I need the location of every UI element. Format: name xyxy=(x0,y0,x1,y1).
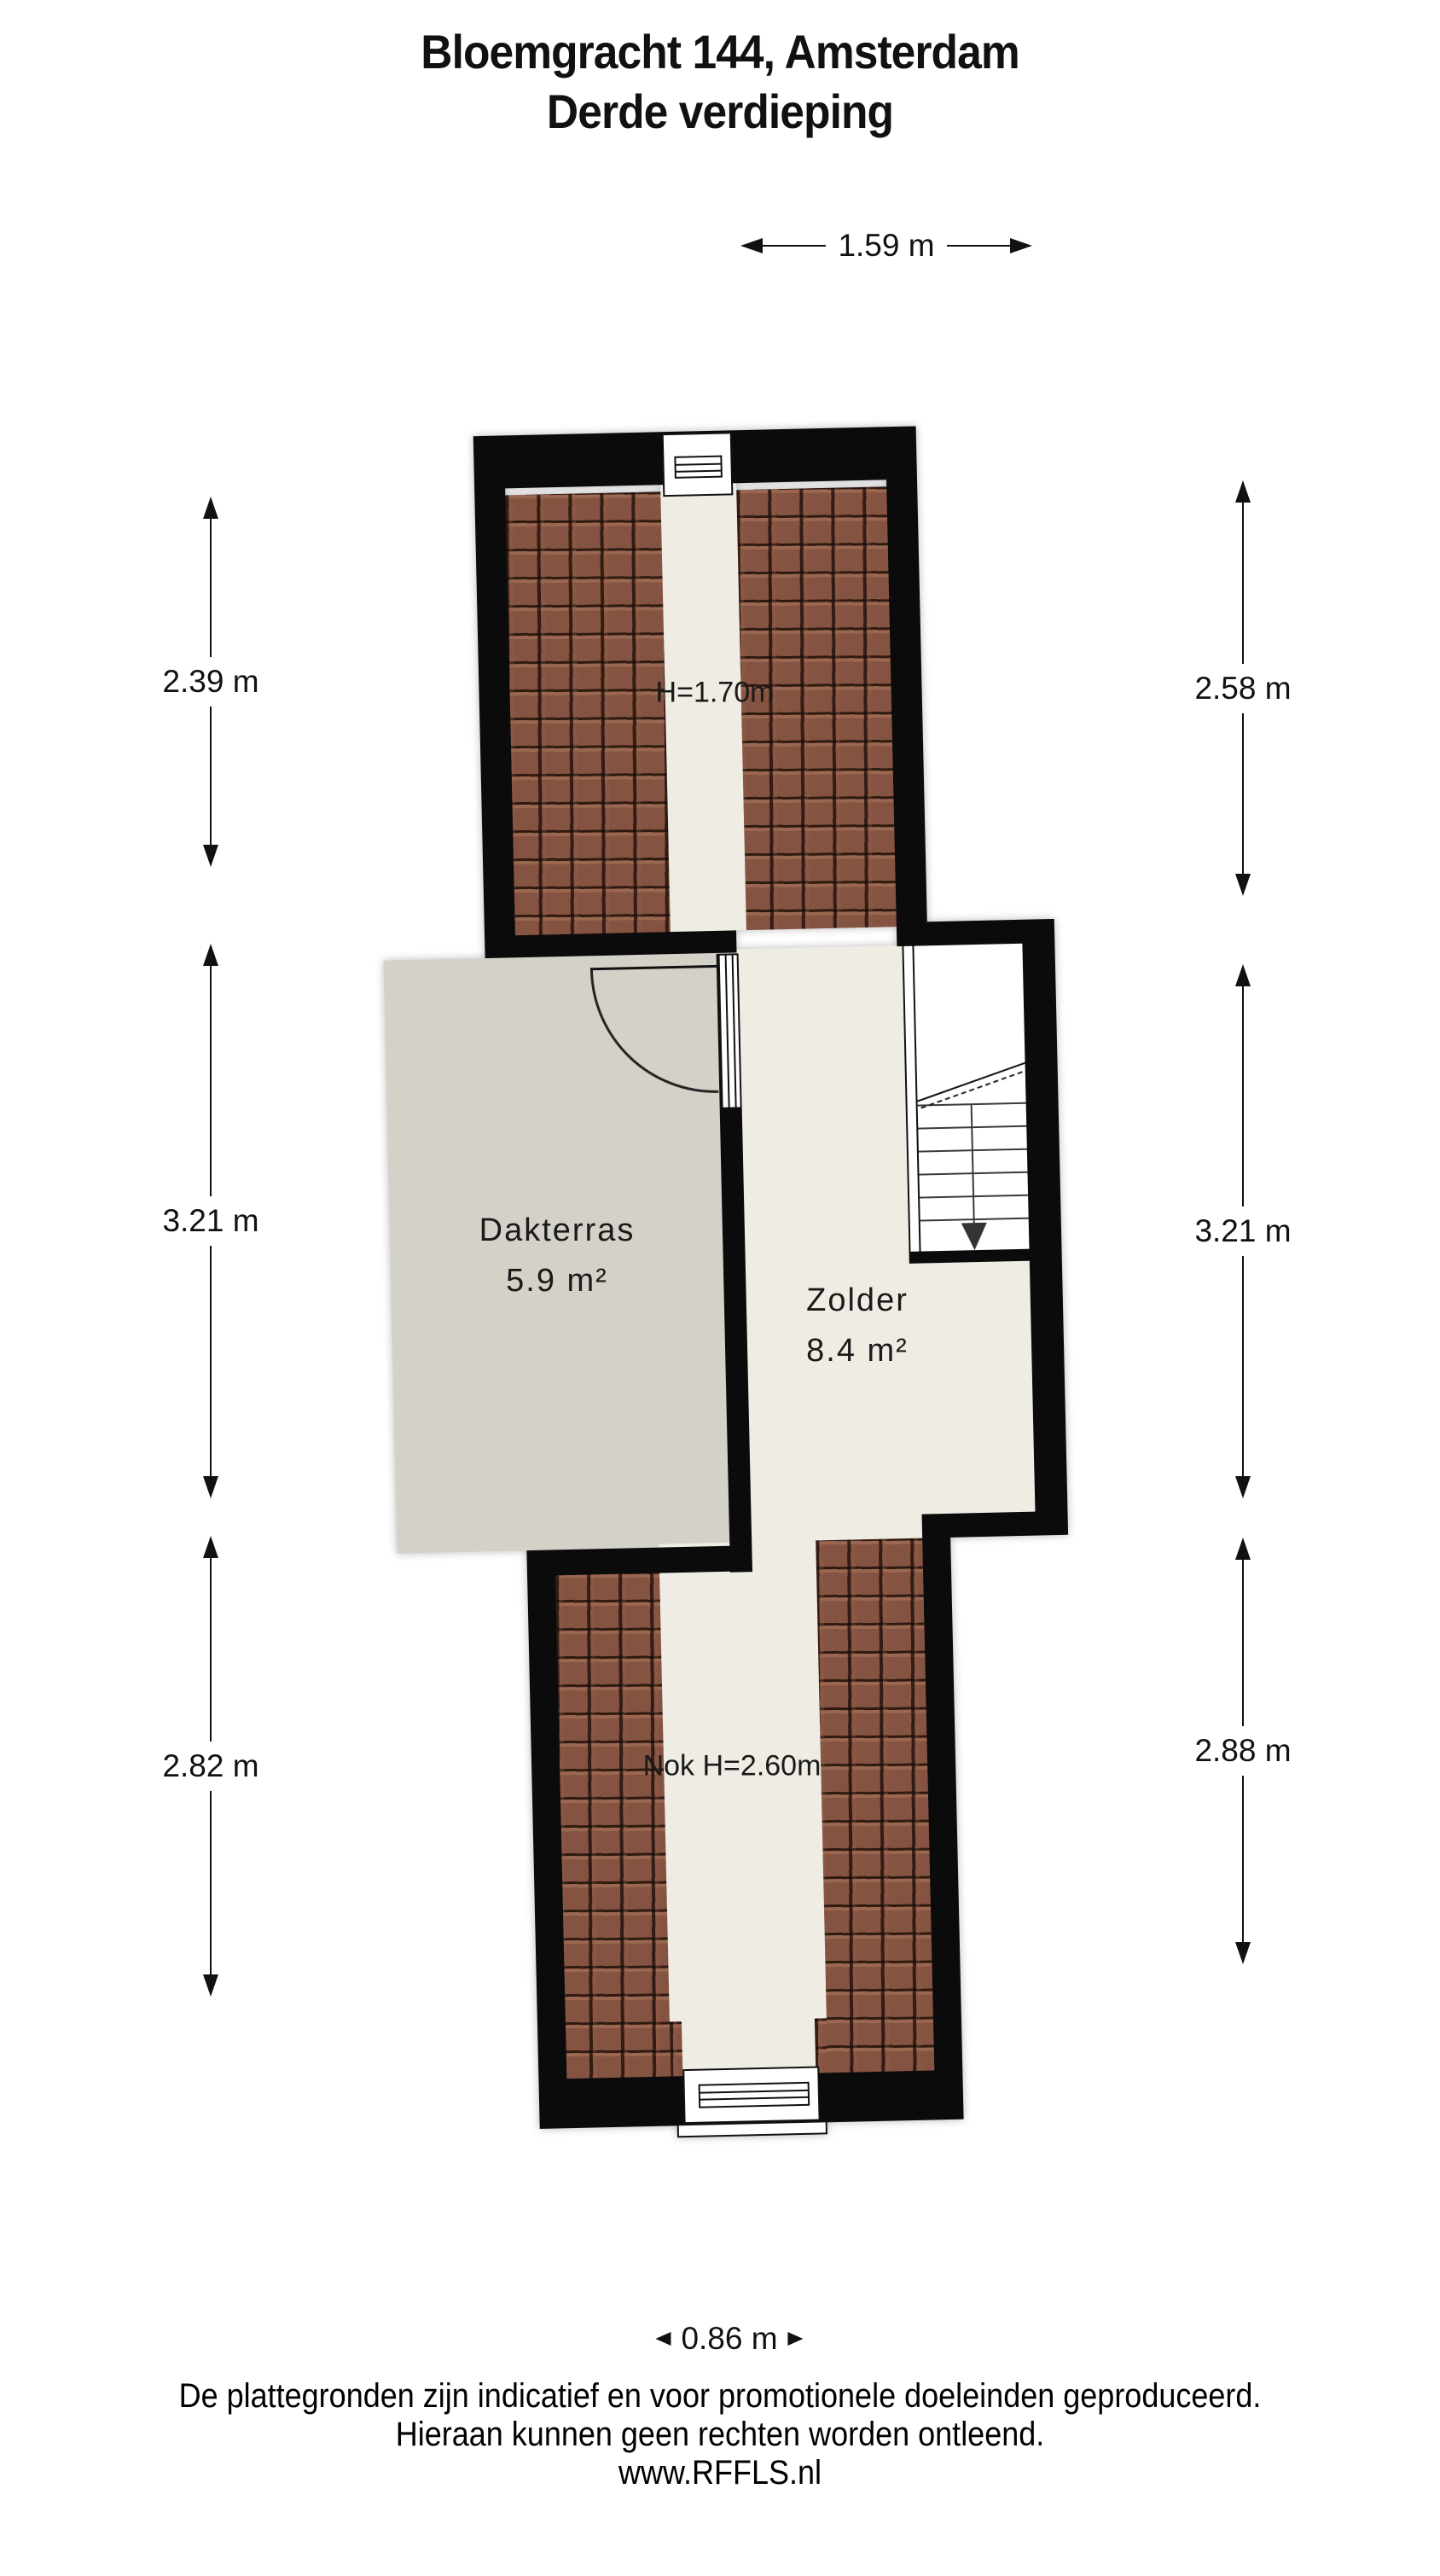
room-name: Dakterras xyxy=(479,1206,636,1256)
arrow-left-icon xyxy=(740,238,763,253)
dimension-left-2-value: 3.21 m xyxy=(162,1196,258,1246)
dimension-right-1-value: 2.58 m xyxy=(1194,664,1291,713)
arrow-up-icon xyxy=(203,944,218,966)
arrow-right-icon xyxy=(788,2332,804,2346)
dimension-left-2: 3.21 m xyxy=(142,944,279,1498)
arrow-up-icon xyxy=(1235,964,1251,986)
arrow-down-icon xyxy=(203,1476,218,1498)
disclaimer: De plattegronden zijn indicatief en voor… xyxy=(72,2377,1367,2493)
arrow-up-icon xyxy=(1235,1538,1251,1560)
roof-tile-notch-right xyxy=(815,2018,827,2073)
dimension-left-1-value: 2.39 m xyxy=(162,657,258,707)
dimension-right-2-value: 3.21 m xyxy=(1194,1207,1291,1256)
window-bottom-glass xyxy=(699,2082,810,2108)
room-name: Zolder xyxy=(806,1276,909,1326)
wall-dakterras-bottom xyxy=(526,1545,751,1576)
dimension-right-2: 3.21 m xyxy=(1175,964,1311,1498)
door-frame xyxy=(717,953,742,1109)
arrow-down-icon xyxy=(203,1974,218,1997)
arrow-up-icon xyxy=(1235,480,1251,503)
window-bottom-sill xyxy=(677,2120,827,2137)
arrow-down-icon xyxy=(1235,1476,1251,1498)
dimension-top: 1.59 m xyxy=(740,224,1032,268)
arrow-down-icon xyxy=(1235,1942,1251,1964)
room-area: 8.4 m² xyxy=(806,1326,909,1376)
arrow-up-icon xyxy=(203,497,218,519)
dimension-bottom: 0.86 m xyxy=(655,2321,803,2357)
room-area: 5.9 m² xyxy=(479,1256,636,1306)
disclaimer-line-2: Hieraan kunnen geen rechten worden ontle… xyxy=(72,2416,1367,2454)
disclaimer-website: www.RFFLS.nl xyxy=(72,2454,1367,2492)
stairs-down-arrow-icon xyxy=(961,1223,988,1251)
dimension-right-3: 2.88 m xyxy=(1175,1538,1311,1964)
dimension-left-3: 2.82 m xyxy=(142,1536,279,1997)
arrow-up-icon xyxy=(203,1536,218,1558)
arrow-down-icon xyxy=(203,845,218,867)
arrow-right-icon xyxy=(1010,238,1032,253)
arrow-left-icon xyxy=(655,2332,671,2346)
dimension-left-1: 2.39 m xyxy=(142,497,279,867)
roof-tiles-bottom-right xyxy=(816,1538,934,2073)
roof-tile-notch-left xyxy=(670,2021,682,2076)
dimension-left-3-value: 2.82 m xyxy=(162,1742,258,1791)
dimension-right-3-value: 2.88 m xyxy=(1194,1726,1291,1776)
room-label-dakterras: Dakterras 5.9 m² xyxy=(479,1206,636,1306)
roof-tiles-top-left xyxy=(505,491,671,935)
roof-height-label: H=1.70m xyxy=(656,677,775,710)
arrow-down-icon xyxy=(1235,874,1251,896)
dimension-bottom-value: 0.86 m xyxy=(681,2321,777,2357)
disclaimer-line-1: De plattegronden zijn indicatief en voor… xyxy=(72,2377,1367,2416)
ridge-height-label: Nok H=2.60m xyxy=(643,1750,822,1783)
dimension-top-value: 1.59 m xyxy=(826,228,946,264)
roof-window-top-glass xyxy=(674,456,723,479)
roof-tiles-bottom-left xyxy=(555,1572,671,2079)
dimension-right-1: 2.58 m xyxy=(1175,480,1311,896)
room-label-zolder: Zolder 8.4 m² xyxy=(806,1276,909,1376)
